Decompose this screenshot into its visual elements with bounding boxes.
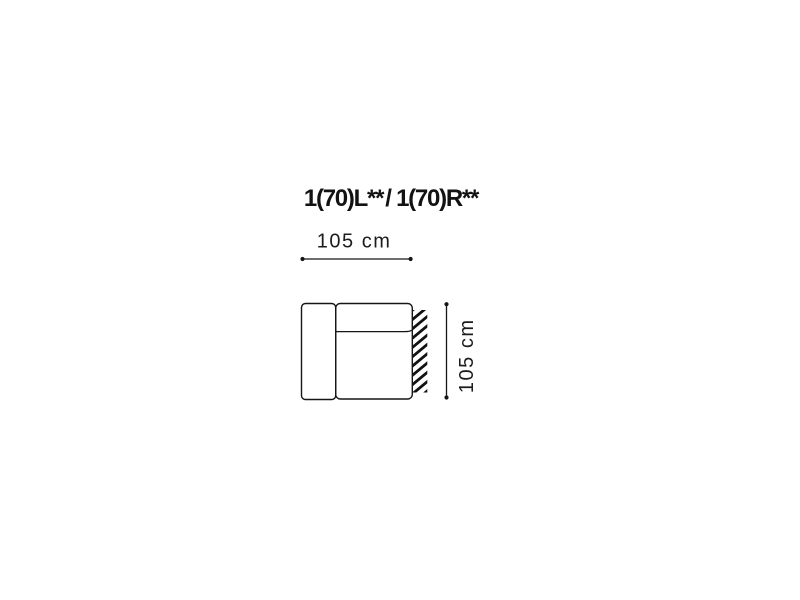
svg-text:1(70)L**/ 1(70)R**: 1(70)L**/ 1(70)R**	[304, 185, 480, 212]
svg-text:105 cm: 105 cm	[317, 231, 392, 253]
svg-text:105 cm: 105 cm	[456, 319, 478, 394]
